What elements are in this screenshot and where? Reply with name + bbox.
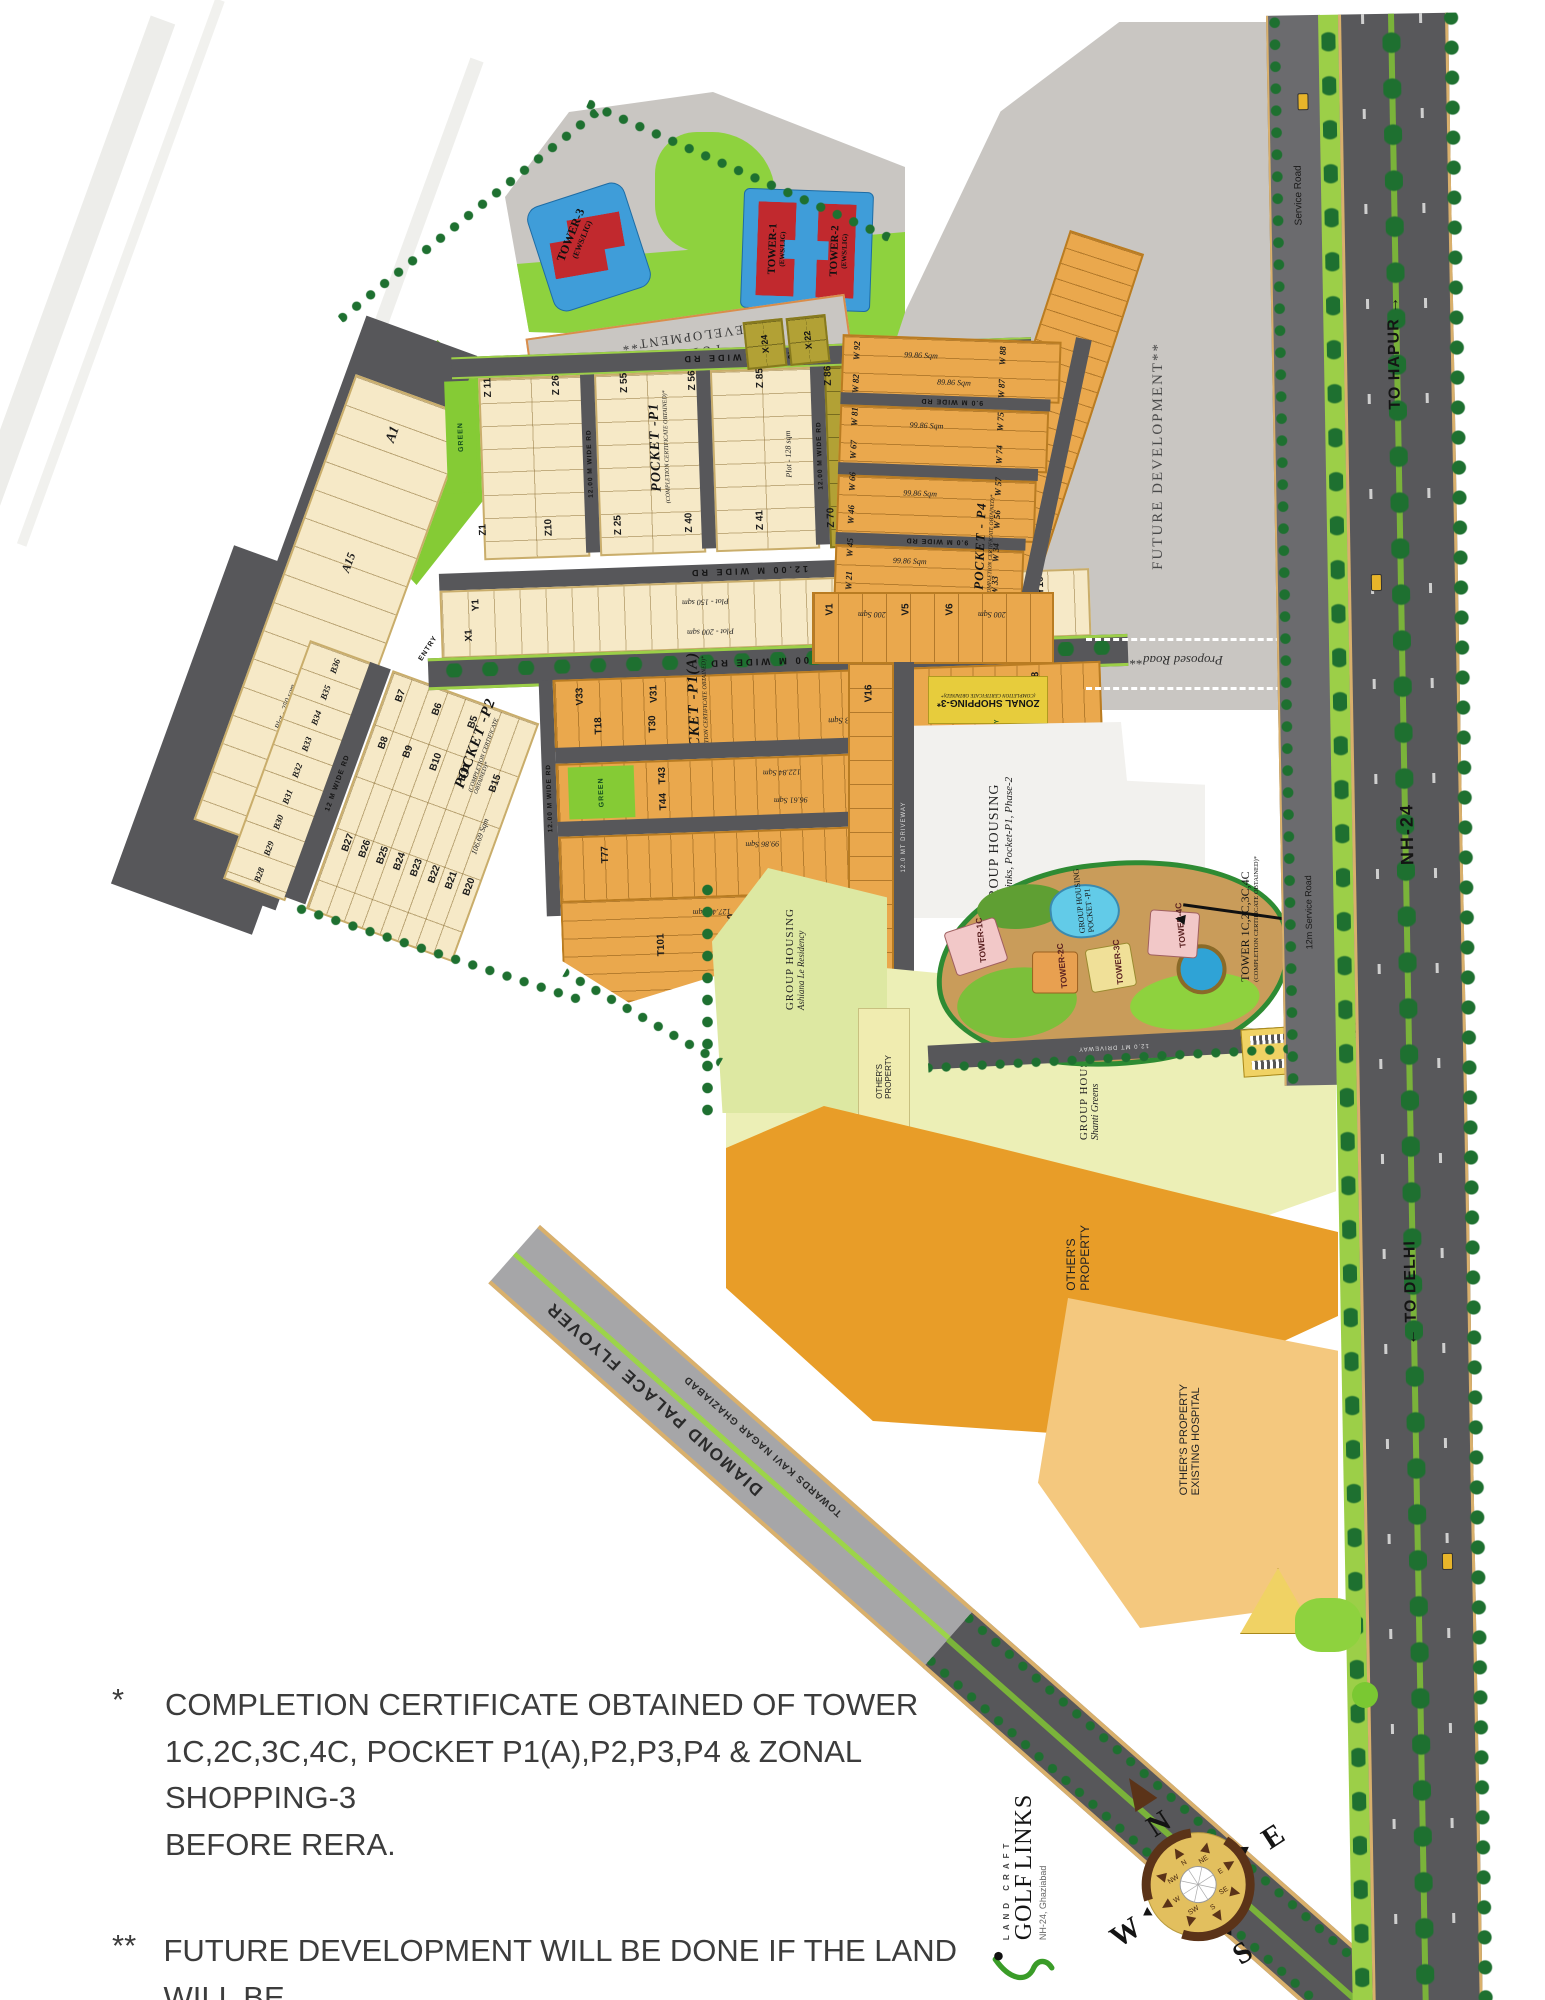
tree-line <box>700 880 714 1120</box>
plot-label: Z 41 <box>755 510 767 530</box>
area-label: 89.86 Sqm <box>937 377 971 387</box>
logo-name: GOLFLINKS <box>1011 1794 1038 1940</box>
logo-top: LAND CRAFT <box>1002 1794 1011 1940</box>
v-plots-row: V1 200 Sqm V5 V6 200 Sqm <box>812 592 1054 664</box>
note-marker: ** <box>112 1928 163 1964</box>
plot-label: B30 <box>271 814 286 832</box>
plot-label: W 74 <box>994 445 1005 464</box>
plot-label: Z 25 <box>612 515 624 535</box>
plot-label: Z 85 <box>754 368 766 388</box>
plot-label: T44 <box>658 793 670 811</box>
plot-label: V31 <box>648 685 660 703</box>
area-label: 99.86 Sqm <box>903 488 937 498</box>
plot-label: Z 55 <box>618 373 630 393</box>
area-label: 99.86 Sqm <box>893 556 927 566</box>
service-road-label: Service Road <box>1293 165 1305 225</box>
note-marker: * <box>112 1682 165 1718</box>
golfer-swoosh-icon <box>991 1948 1060 1992</box>
area-label: 122.84 Sqm <box>763 767 801 777</box>
plot-label: B28 <box>252 866 267 884</box>
plot-label: W 66 <box>847 472 858 491</box>
area-label: Plot - 150 sqm <box>682 597 729 608</box>
plot-label: A1 <box>383 424 404 445</box>
car <box>1297 93 1308 110</box>
plot-label: V6 <box>945 603 956 615</box>
plot-label: B27 <box>340 832 357 853</box>
green-patch: GREEN <box>444 381 478 494</box>
ashiana-label: GROUP HOUSING Ashiana Le Residency <box>784 908 806 1010</box>
existing-hospital-label: OTHER'S PROPERTY EXISTING HOSPITAL <box>1178 1384 1202 1495</box>
plot-label: W 21 <box>844 570 855 589</box>
logo-text: LAND CRAFT GOLFLINKS NH-24, Ghaziabad <box>1002 1794 1048 1940</box>
plot-label: W 45 <box>845 538 856 557</box>
plot-label: B32 <box>290 762 305 780</box>
area-label: 99.86 Sqm <box>745 839 779 849</box>
plot-label: B24 <box>392 851 409 872</box>
plot-label: Z10 <box>543 519 555 537</box>
road-label: 12.00 M WIDE RD <box>815 421 824 490</box>
plot-label: B9 <box>401 744 416 760</box>
plot-label: A15 <box>338 551 359 575</box>
plot-label: V33 <box>574 687 586 705</box>
green-label: GREEN <box>457 422 465 452</box>
compass-s: S <box>1227 1935 1259 1972</box>
plot-label: X 24 <box>759 334 771 353</box>
plot-label: V16 <box>863 685 874 703</box>
plot-label: B33 <box>300 736 315 754</box>
pocket-p4-label: POCKET - P4 (COMPLETION CERTIFICATE OBTA… <box>970 494 996 598</box>
others-property-label: OTHER'S PROPERTY <box>1064 1225 1092 1291</box>
area-label: 96.61 Sqm <box>774 795 808 805</box>
pocket-p1-label: POCKET -P1 (COMPLETION CERTIFICATE OBTAI… <box>646 390 672 504</box>
plot-label: B10 <box>427 751 444 772</box>
plot-label: W 87 <box>997 379 1008 398</box>
note-line: 1C,2C,3C,4C, POCKET P1(A),P2,P3,P4 & ZON… <box>165 1729 1012 1822</box>
note-line: BEFORE RERA. <box>165 1822 1012 1869</box>
plot-label: T77 <box>600 846 612 864</box>
others-property-small-label: OTHER'S PROPERTY <box>875 1055 893 1099</box>
plot-label: B6 <box>430 701 445 717</box>
pocket-p4-block: 9.0 M WIDE RD 9.0 M WIDE RD W 92W 82W 81… <box>833 334 1067 610</box>
plot-label: V5 <box>901 603 912 615</box>
to-hapur-label: TO HAPUR → <box>1385 283 1405 423</box>
site-plan-canvas: DIAMOND PALACE FLYOVER TOWARDS KAVI NAGA… <box>0 0 1545 2000</box>
to-delhi-label: ← TO DELHI <box>1401 1222 1421 1362</box>
plot-label: W 92 <box>852 341 863 360</box>
plot-label: W 82 <box>851 374 862 393</box>
plot-label: W 81 <box>850 407 861 426</box>
compass-needle <box>1118 1771 1157 1812</box>
green-square: GREEN <box>568 765 636 819</box>
plot-label: T101 <box>655 933 667 956</box>
tower-2c-buildings <box>1032 952 1078 994</box>
green-label: GREEN <box>598 777 606 807</box>
compass-e: E <box>1256 1817 1291 1856</box>
green-island <box>1295 1598 1361 1652</box>
road-label: 12.0 MT DRIVEWAY <box>901 802 907 873</box>
area-label: 99.86 Sqm <box>909 421 943 431</box>
plot-label: B23 <box>409 857 426 878</box>
plot-label: B26 <box>357 839 374 860</box>
road-label: 12.00 M WIDE RD <box>585 429 594 498</box>
plot-label: T43 <box>657 767 669 785</box>
plot-label: B8 <box>376 735 391 751</box>
plot-label: X1 <box>463 629 474 642</box>
notes: * COMPLETION CERTIFICATE OBTAINED OF TOW… <box>112 1682 1012 2000</box>
tower-1-label: TOWER-1 (EWS/LIG) <box>743 189 811 309</box>
car <box>1371 574 1382 591</box>
note-completion: * COMPLETION CERTIFICATE OBTAINED OF TOW… <box>112 1682 1012 1868</box>
plot-label: B25 <box>374 845 391 866</box>
service-road-12m-label: 12m Service Road <box>1303 875 1314 949</box>
plot-label: Z 56 <box>686 370 698 390</box>
area-label: Plot - 128 sqm <box>783 431 794 478</box>
plot-label: W 75 <box>995 412 1006 431</box>
plot-label: X 22 <box>802 330 814 349</box>
note-line: COMPLETION CERTIFICATE OBTAINED OF TOWER <box>165 1682 1012 1729</box>
nh24-label: NH-24 <box>1396 764 1419 904</box>
road-label: 12.00 M WIDE RD <box>689 564 808 578</box>
plot-label: V1 <box>825 603 836 615</box>
plot-label: B35 <box>319 684 334 702</box>
x-plot: X 22 <box>786 314 831 366</box>
plot-label: Z 40 <box>683 512 695 532</box>
road-label: 9.0 M WIDE RD <box>920 397 983 406</box>
plot-label: T18 <box>593 717 605 735</box>
plot-label: T30 <box>647 715 659 733</box>
note-future: ** FUTURE DEVELOPMENT WILL BE DONE IF TH… <box>112 1928 1012 2000</box>
tower-cc-vertical-label: TOWER 1C,2C,3C,4C (COMPLETION CERTIFICAT… <box>1238 856 1260 982</box>
nh24-highway: Service Road 12m Service Road TO HAPUR →… <box>1266 12 1516 2000</box>
plot-label: W 46 <box>846 505 857 524</box>
x-plot: X 24 <box>743 318 788 370</box>
plot-label: Z 86 <box>822 365 834 385</box>
zonal-shopping: ZONAL SHOPPING-3* (COMPLETION CERTIFICAT… <box>928 676 1048 724</box>
plot-label: Z 11 <box>482 378 494 398</box>
proposed-road-label: Proposed Road** <box>1130 652 1223 668</box>
green-island <box>1352 1682 1378 1708</box>
road-label: 12.00 M WIDE RD <box>545 764 554 833</box>
driveway-vertical: 12.0 MT DRIVEWAY <box>894 662 914 1012</box>
plot-label: Y1 <box>470 599 481 612</box>
area-label: 99.86 Sqm <box>904 350 938 360</box>
pointer-arrowhead <box>1175 914 1186 925</box>
future-development-vertical-label: FUTURE DEVELOPMENT** <box>1150 342 1167 570</box>
plot-label: B22 <box>426 864 443 885</box>
plot-label: Z 26 <box>550 375 562 395</box>
plot-label: B34 <box>309 710 324 728</box>
plot-label: W 88 <box>998 346 1009 365</box>
plot-label: Z1 <box>477 524 488 536</box>
compass-w: W <box>1104 1910 1147 1954</box>
plot-label: B7 <box>393 688 408 704</box>
plot-label: B31 <box>281 788 296 806</box>
area-label: 200 Sqm <box>858 610 886 619</box>
boundary-strip <box>17 0 225 547</box>
road-label: 9.0 M WIDE RD <box>905 536 968 545</box>
plot-label: W 67 <box>848 440 859 459</box>
note-line: FUTURE DEVELOPMENT WILL BE DONE IF THE L… <box>163 1928 1012 2000</box>
plot-label: B36 <box>328 657 343 675</box>
logo-sub: NH-24, Ghaziabad <box>1038 1794 1048 1940</box>
area-label: 200 Sqm <box>978 610 1006 619</box>
area-label: Plot - 200 sqm <box>687 627 734 638</box>
plot-label: B29 <box>262 840 277 858</box>
car <box>1442 1553 1453 1570</box>
